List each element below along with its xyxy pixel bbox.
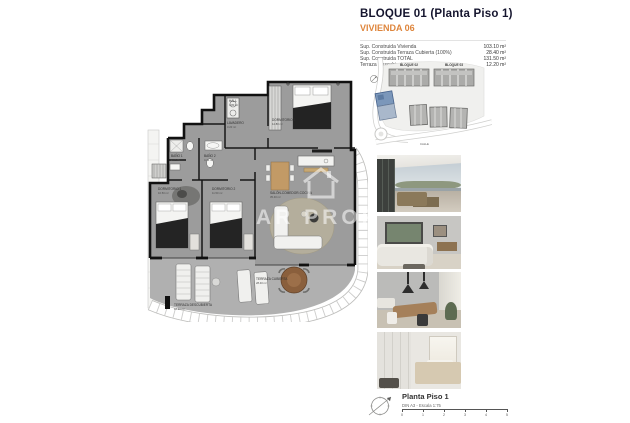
- room-label-dormitorio-2: DORMITORIO 2: [212, 187, 236, 191]
- scale-tick: [423, 409, 424, 412]
- scale-number: 4: [485, 413, 487, 417]
- photo-railing: [395, 188, 461, 191]
- photo-sofa: [377, 244, 433, 266]
- room-area: 4.05 m²: [171, 158, 180, 162]
- scale-tick: [465, 409, 466, 412]
- building-bloque-03: [434, 69, 474, 86]
- room-area: 12.20 m²: [174, 307, 185, 311]
- terrace-pillar: [165, 296, 170, 309]
- scale-number: 0: [401, 413, 403, 417]
- scale-number: 5: [506, 413, 508, 417]
- scale-number: 3: [464, 413, 466, 417]
- site-compass-icon: [370, 75, 377, 82]
- room-label-dormitorio-3: DORMITORIO 3: [272, 118, 296, 122]
- photo-wall-art: [433, 225, 447, 237]
- bed-dormitorio-2: [210, 202, 242, 248]
- rug-shadow: [177, 190, 187, 198]
- photo-plant: [445, 302, 457, 320]
- unit-subtitle: VIVIENDA 06: [360, 23, 510, 33]
- bloque-03-label: BLOQUE 03: [445, 63, 463, 67]
- site-plan-svg: BLOQUE 02 BLOQUE 03 CALLE: [368, 56, 492, 150]
- photo-dining-back: [437, 242, 457, 251]
- compass-icon: [366, 392, 396, 420]
- scale-number: 2: [443, 413, 445, 417]
- room-label-hall: HALL: [229, 99, 237, 103]
- footer-title-block: Planta Piso 1 DIN A3 - Escala 1:75 0 1 2…: [366, 390, 512, 420]
- tv-unit: [312, 150, 332, 153]
- room-label-bano-2: BAÑO 2: [204, 153, 216, 158]
- bloque-02-label: BLOQUE 02: [400, 63, 418, 67]
- photo-pendant-lamp: [423, 272, 425, 281]
- plan-sheet: { "header": { "title": "BLOQUE 01 (Plant…: [0, 0, 630, 423]
- street-label: CALLE: [420, 142, 429, 146]
- dresser: [190, 234, 199, 250]
- room-area: 3.20 m²: [227, 125, 236, 129]
- scale-number: 1: [422, 413, 424, 417]
- scale-tick: [402, 409, 403, 412]
- room-label-dormitorio-1: DORMITORIO 1: [158, 187, 182, 191]
- room-label-bano-1: BAÑO 1: [171, 153, 183, 158]
- room-area: 10.50 m²: [158, 191, 169, 195]
- photo-chair: [387, 312, 397, 324]
- photo-bench: [379, 378, 399, 388]
- floor-plan: HALL 3.80 m² LAVADERO 3.20 m² BAÑO 1 4.0…: [66, 68, 368, 322]
- scale-bar-line: [402, 409, 507, 410]
- photo-pendant-lamp: [407, 272, 409, 284]
- room-area: 35.40 m²: [270, 195, 281, 199]
- sheet-title: BLOQUE 01 (Planta Piso 1): [360, 8, 510, 20]
- roundabout-center: [379, 132, 384, 137]
- room-label-terraza-descubierta: TERRAZA DESCUBIERTA: [174, 303, 213, 307]
- photo-wall-art: [385, 222, 423, 244]
- room-area: 28.40 m²: [256, 281, 267, 285]
- building-bloque-02: [389, 69, 429, 86]
- photo-living-room: [377, 216, 461, 269]
- photo-bedroom: [377, 332, 461, 389]
- footer-plan-title: Planta Piso 1: [402, 392, 449, 401]
- room-area: 12.80 m²: [272, 122, 283, 126]
- photo-coffee-table: [403, 264, 425, 269]
- room-area: 3.80 m²: [229, 103, 238, 107]
- photo-outdoor-sofa: [397, 192, 427, 206]
- footer-scale-note: DIN A3 - Escala 1:75: [402, 403, 441, 408]
- room-label-lavadero: LAVADERO: [227, 121, 244, 125]
- bed-dormitorio-1: [156, 202, 188, 248]
- photo-glass-doors: [377, 159, 395, 212]
- dresser: [244, 234, 253, 250]
- room-label-terraza-cubierta: TERRAZA CUBIERTA: [256, 277, 288, 281]
- room-label-salon: SALÓN-COMEDOR-COCINA: [270, 190, 313, 195]
- living-sofa-set: [270, 198, 334, 254]
- room-area: 11.50 m²: [212, 191, 223, 195]
- scale-tick: [507, 409, 508, 412]
- photo-chair: [417, 314, 428, 326]
- photo-dining-area: [377, 272, 461, 328]
- floor-plan-svg: HALL 3.80 m² LAVADERO 3.20 m² BAÑO 1 4.0…: [66, 68, 368, 322]
- photo-bed: [415, 362, 461, 384]
- scale-tick: [486, 409, 487, 412]
- scale-bar: 0 1 2 3 4 5: [402, 409, 508, 417]
- photo-terrace-view: [377, 155, 461, 212]
- scale-tick: [444, 409, 445, 412]
- site-location-plan: BLOQUE 02 BLOQUE 03 CALLE: [368, 56, 492, 150]
- townhouse-row: [409, 105, 467, 129]
- room-area: 4.20 m²: [204, 158, 213, 162]
